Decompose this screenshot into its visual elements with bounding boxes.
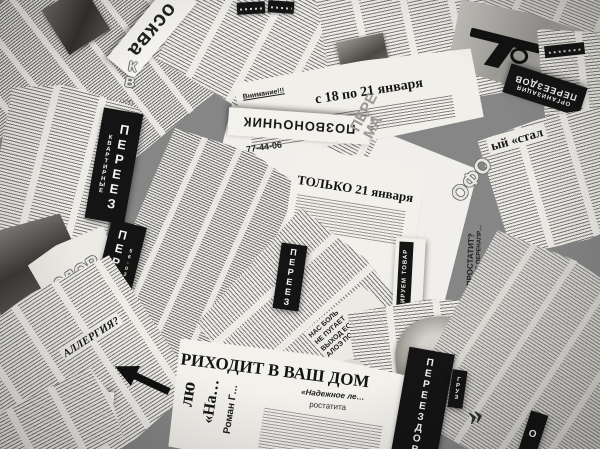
- headline-stal: ый «стал: [486, 123, 548, 155]
- attention-label: Внимание!!!: [242, 87, 285, 100]
- title-fragment: «На…: [199, 378, 224, 425]
- spine-headline: ПОЗВОНОЧНИК: [242, 115, 356, 138]
- black-ad-chip: [544, 42, 585, 58]
- author-fragment: Роман Г…: [222, 384, 241, 435]
- black-ad-chip: [237, 1, 266, 14]
- bar-letter: О: [527, 427, 539, 440]
- banner-line: ПЕРЕЕЗ: [281, 247, 299, 308]
- banner-line: ПЕРЕЕЗДОВ: [408, 357, 436, 449]
- body-text-lines: [257, 408, 383, 449]
- newspaper-collage-photo: НОВИНКИ ОРГАНИЗАЦИЯ ПЕРЕЕЗДОВ ый «стал о…: [0, 0, 600, 449]
- truck-photo-shape: [419, 352, 445, 357]
- black-ad-chip: [268, 0, 295, 14]
- subline: ростатита: [309, 400, 347, 412]
- allergy-headline: АЛЛЕРГИЯ?: [59, 314, 123, 362]
- title-fragment: лю: [176, 380, 202, 408]
- banner-line: ГРУЗ: [453, 377, 462, 402]
